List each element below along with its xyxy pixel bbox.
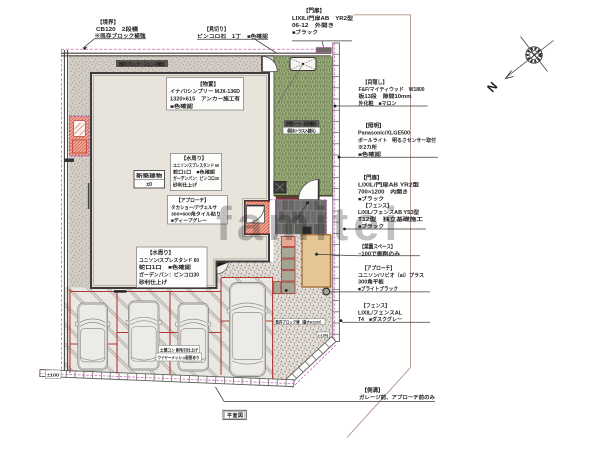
svg-text:ユニソン/スプレスタンド 60: ユニソン/スプレスタンド 60: [139, 257, 199, 264]
svg-text:700×1200 内開き: 700×1200 内開き: [358, 188, 408, 196]
svg-text:ユニソン/スプレスタンド 60: ユニソン/スプレスタンド 60: [173, 162, 219, 169]
svg-text:ワイヤーメッシュ配筋あり: ワイヤーメッシュ配筋あり: [158, 354, 200, 361]
svg-text:【門扉】: 【門扉】: [361, 173, 383, 181]
svg-text:蛇口1口 ■色確認: 蛇口1口 ■色確認: [139, 263, 192, 271]
svg-text:【側溝】: 【側溝】: [362, 386, 384, 394]
svg-text:【水周り】: 【水周り】: [147, 248, 174, 256]
svg-text:【見切り】: 【見切り】: [204, 25, 229, 33]
svg-text:イナバ/シンプリー MJX-136D: イナバ/シンプリー MJX-136D: [170, 88, 240, 95]
svg-text:蛇口1口 ■色確認: 蛇口1口 ■色確認: [173, 168, 215, 175]
svg-text:±100: ±100: [47, 372, 60, 377]
svg-text:CB120 2段積: CB120 2段積: [96, 25, 139, 33]
svg-text:【アプローチ】: 【アプローチ】: [362, 264, 395, 272]
svg-text:■ブラック: ■ブラック: [292, 29, 318, 36]
svg-text:LIXIL/門扉AB YR2型: LIXIL/門扉AB YR2型: [358, 180, 420, 188]
svg-text:【アプローチ】: 【アプローチ】: [176, 196, 209, 204]
svg-text:±0: ±0: [146, 182, 152, 188]
svg-text:【目隠し】: 【目隠し】: [363, 78, 388, 86]
svg-text:（雨水トラス入替え）: （雨水トラス入替え）: [285, 127, 319, 134]
svg-text:既存ブロック・フェンス撤去: 既存ブロック・フェンス撤去: [119, 61, 166, 68]
svg-text:LIXIL/門扉AB YR2型: LIXIL/門扉AB YR2型: [292, 14, 354, 22]
svg-text:【照明】: 【照明】: [363, 121, 385, 129]
svg-text:F&F/マイティウッド W1800: F&F/マイティウッド W1800: [359, 85, 425, 93]
svg-text:砂利仕上げ: 砂利仕上げ: [172, 182, 197, 189]
svg-text:既存ブロック塀（最大H1200）: 既存ブロック塀（最大H1200）: [276, 318, 324, 324]
svg-text:防草シート・砂利敷き: 防草シート・砂利敷き: [286, 121, 317, 128]
svg-text:ポールライト 明るさセンサー取付: ポールライト 明るさセンサー取付: [358, 137, 436, 144]
svg-text:【水周り】: 【水周り】: [181, 154, 207, 162]
svg-text:タカショー/アヴェルサ: タカショー/アヴェルサ: [171, 204, 217, 211]
svg-text:−100で掘削のみ: −100で掘削のみ: [358, 249, 401, 257]
svg-text:砂利仕上げ: 砂利仕上げ: [138, 278, 168, 286]
svg-text:【門扉】: 【門扉】: [303, 7, 325, 15]
svg-text:ガーデンパン：ピンコロ30: ガーデンパン：ピンコロ30: [139, 272, 199, 279]
svg-text:1320×615 アンカー施工有: 1320×615 アンカー施工有: [170, 96, 240, 103]
svg-text:(-100): (-100): [318, 333, 329, 338]
svg-text:Panasonic/XLGE500: Panasonic/XLGE500: [358, 130, 410, 136]
svg-text:【フェンス】: 【フェンス】: [361, 301, 390, 309]
svg-text:土間コン 刷毛引仕上げ: 土間コン 刷毛引仕上げ: [160, 346, 199, 353]
svg-text:famitei: famitei: [216, 197, 403, 250]
svg-text:ガーデンパン：ピンコロ30: ガーデンパン：ピンコロ30: [173, 175, 219, 182]
svg-text:LIXIL/フェンスAL: LIXIL/フェンスAL: [358, 309, 403, 316]
svg-text:300×600角タイル貼り: 300×600角タイル貼り: [171, 210, 221, 217]
svg-text:06-12 外開き: 06-12 外開き: [292, 21, 334, 29]
svg-text:■ディープグレー: ■ディープグレー: [171, 217, 207, 224]
svg-text:新築建物: 新築建物: [136, 172, 163, 180]
svg-text:【物置】: 【物置】: [197, 80, 219, 88]
svg-text:※2カ所: ※2カ所: [358, 144, 377, 151]
svg-text:300角平板: 300角平板: [358, 278, 385, 286]
svg-text:ユニソン/リビオ〔ai〕プラス: ユニソン/リビオ〔ai〕プラス: [358, 272, 424, 279]
svg-text:【境界】: 【境界】: [97, 18, 119, 26]
svg-text:平面図: 平面図: [227, 412, 243, 419]
svg-text:板13段 隙間10mm: 板13段 隙間10mm: [359, 92, 412, 100]
svg-text:ガレージ前、アプローチ前のみ: ガレージ前、アプローチ前のみ: [359, 394, 435, 401]
svg-text:■色確認: ■色確認: [170, 103, 193, 110]
